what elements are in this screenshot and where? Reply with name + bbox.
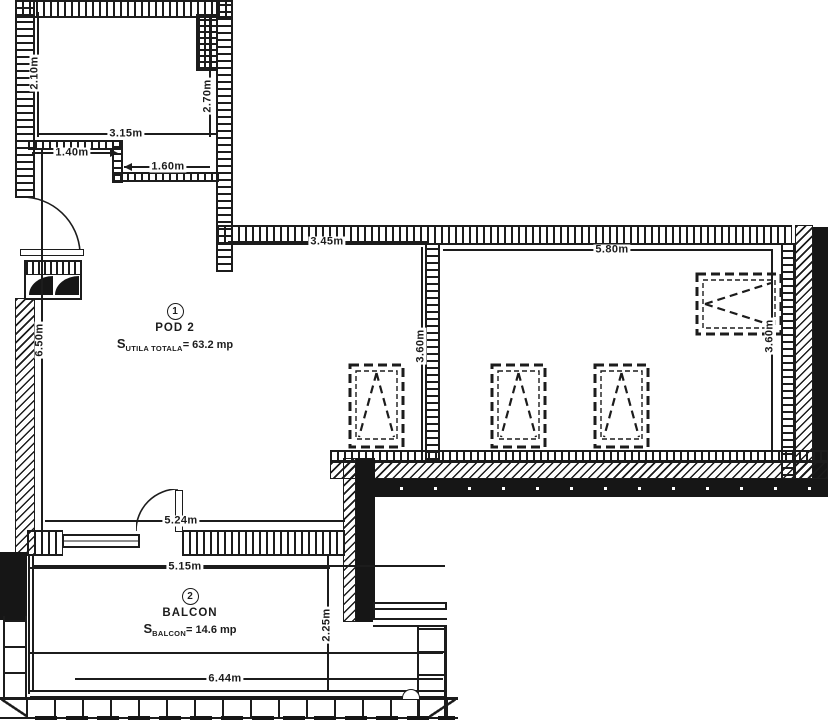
radiator-fixture xyxy=(24,260,82,300)
room-name: POD 2 xyxy=(90,321,260,335)
floor-plan: 2.10m 2.70m 3.15m 1.40m 1.60m 3.45m 5.80… xyxy=(0,0,828,720)
railing-base-dashes xyxy=(35,716,455,720)
wall-balcony-right-seg xyxy=(182,530,345,556)
wall-right-masonry xyxy=(781,243,795,483)
dim-main-top-left: 3.45m xyxy=(308,237,345,248)
skylight-icon xyxy=(490,363,547,449)
roof-edge-ticks xyxy=(400,487,820,490)
wall-closet-left xyxy=(15,0,35,198)
dim-line xyxy=(75,678,443,680)
balcony-left-edge xyxy=(28,556,34,694)
dim-closet-width: 3.15m xyxy=(107,129,144,140)
dim-arrow xyxy=(110,149,118,157)
chimney-flue xyxy=(196,14,218,71)
wall-balcony-left-seg xyxy=(27,530,63,556)
balcony-floor-line xyxy=(30,652,443,654)
dim-main-bottom-width: 5.24m xyxy=(162,516,199,527)
dim-partition-height: 3.60m xyxy=(416,327,427,364)
fixture-hatch xyxy=(26,262,80,275)
dim-arrow xyxy=(124,163,132,171)
window-icon xyxy=(62,534,140,548)
wall-closet-south-right xyxy=(113,172,219,182)
balcony-right-ledge xyxy=(373,602,447,610)
dim-balcony-top-width: 5.15m xyxy=(166,562,203,573)
wall-left-lower xyxy=(15,298,35,556)
dim-balcony-bottom-width: 6.44m xyxy=(206,674,243,685)
room-label-balcon: 2 BALCON SBALCON= 14.6 mp xyxy=(105,585,275,639)
dim-closet-right-height: 2.70m xyxy=(203,77,214,114)
balcony-left-black xyxy=(0,552,27,620)
skylight-icon xyxy=(348,363,405,449)
dim-main-left-height: 6.50m xyxy=(35,321,46,358)
room-number-badge: 1 xyxy=(167,303,184,320)
room-area: SUTILA TOTALA= 63.2 mp xyxy=(90,336,260,353)
door-arc-icon xyxy=(18,196,84,256)
room-area: SBALCON= 14.6 mp xyxy=(105,621,275,638)
door-leaf xyxy=(20,249,84,256)
railing-corner-left xyxy=(1,699,28,717)
dim-line xyxy=(209,15,211,137)
railing-corner-right xyxy=(429,699,456,717)
room-name: BALCON xyxy=(105,606,275,620)
dim-closet-nook-right: 1.60m xyxy=(149,162,186,173)
skylight-icon xyxy=(593,363,650,449)
dim-closet-left-height: 2.10m xyxy=(30,54,41,91)
dim-closet-nook-left: 1.40m xyxy=(53,148,90,159)
wall-south-right-section xyxy=(330,450,828,462)
room-number-badge: 2 xyxy=(182,588,199,605)
wall-partition xyxy=(425,245,440,460)
wall-south-insulation xyxy=(330,462,828,479)
roof-edge-corner xyxy=(356,458,375,622)
balcony-right-ledge-lower xyxy=(373,618,447,627)
railing-left xyxy=(3,616,27,698)
fixture-basin-right xyxy=(55,276,79,295)
dim-right-side-height: 3.60m xyxy=(765,317,776,354)
room-label-pod2: 1 POD 2 SUTILA TOTALA= 63.2 mp xyxy=(90,300,260,354)
dim-balcony-depth: 2.25m xyxy=(322,606,333,643)
dim-main-top-right: 5.80m xyxy=(593,245,630,256)
